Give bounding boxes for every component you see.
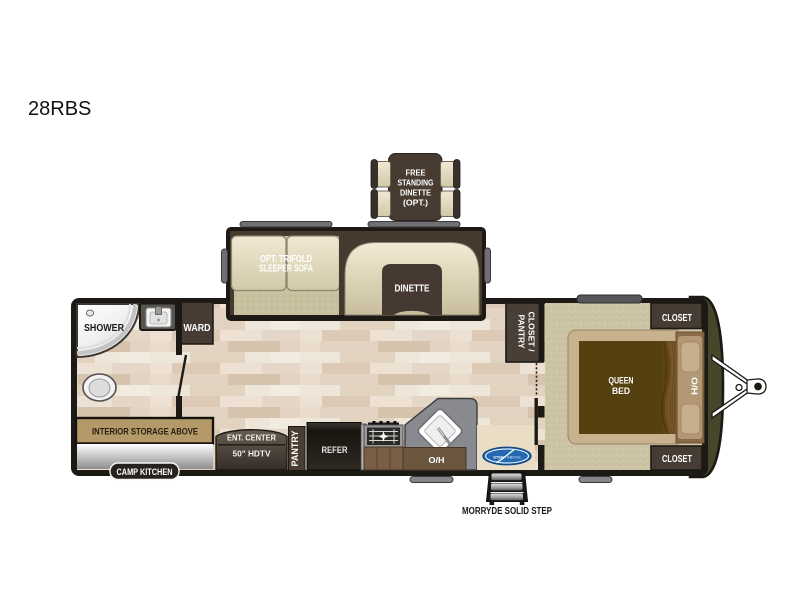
svg-text:O/H: O/H [429, 455, 445, 465]
svg-text:CAMP KITCHEN: CAMP KITCHEN [117, 467, 173, 477]
svg-text:CLOSET: CLOSET [662, 454, 692, 465]
svg-text:SLEEPER SOFA: SLEEPER SOFA [259, 264, 313, 275]
svg-text:FREE: FREE [406, 168, 426, 178]
svg-text:50" HDTV: 50" HDTV [233, 449, 271, 459]
svg-text:SHOWER: SHOWER [84, 323, 125, 334]
svg-text:ABOVE: ABOVE [507, 455, 521, 460]
svg-text:INTERIOR STORAGE ABOVE: INTERIOR STORAGE ABOVE [92, 427, 198, 438]
svg-text:28RBS: 28RBS [28, 98, 91, 120]
svg-text:DINETTE: DINETTE [400, 188, 431, 198]
svg-text:DINETTE: DINETTE [395, 284, 430, 295]
svg-text:CLOSET /: CLOSET / [527, 312, 537, 353]
svg-text:WARD: WARD [184, 323, 211, 334]
svg-text:PANTRY: PANTRY [290, 431, 300, 467]
svg-text:CLOSET: CLOSET [662, 313, 692, 324]
svg-text:STANDING: STANDING [398, 178, 434, 188]
svg-text:BED: BED [612, 386, 630, 396]
svg-text:PANTRY: PANTRY [517, 315, 527, 349]
svg-text:ENT. CENTER: ENT. CENTER [227, 433, 276, 443]
svg-text:O/H: O/H [690, 377, 700, 395]
svg-text:(OPT.): (OPT.) [403, 198, 428, 208]
svg-text:STEP: STEP [493, 455, 504, 460]
svg-text:MORRYDE SOLID STEP: MORRYDE SOLID STEP [462, 505, 552, 517]
svg-text:REFER: REFER [322, 445, 348, 455]
svg-text:QUEEN: QUEEN [609, 376, 634, 386]
